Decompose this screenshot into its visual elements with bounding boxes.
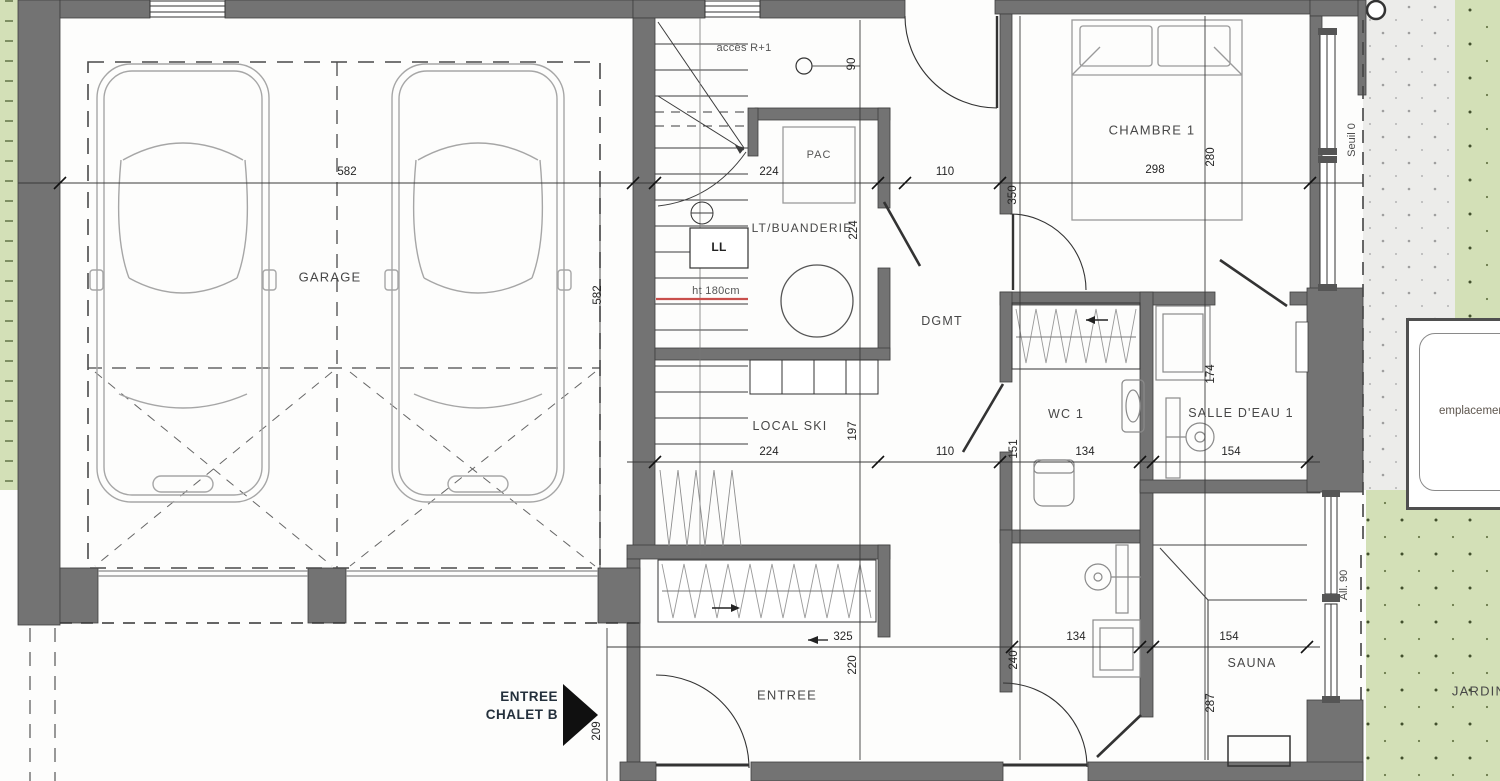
dim-label: 209 [591,721,603,740]
garage-doors [98,571,598,576]
height-note-label: ht 180cm [692,285,740,297]
car-icon [90,64,276,502]
dim-label: 154 [1221,446,1240,458]
direction-arrow-left-icon [1086,316,1108,324]
acces-etage-label: accès R+1 [717,42,772,54]
dim-label: 110 [936,446,954,458]
dim-label: 151 [1008,439,1020,458]
room-label-garage: GARAGE [299,270,362,285]
room-label-chambre1: CHAMBRE 1 [1109,123,1196,138]
dim-label: 134 [1066,631,1085,643]
dim-label: 134 [1075,446,1094,458]
dim-label: 154 [1219,631,1238,643]
dim-label: 224 [759,166,778,178]
dim-label: 220 [847,655,859,674]
dim-label: 298 [1145,164,1164,176]
garage-parking [30,62,640,781]
shower-head-icon [1186,423,1214,451]
ceiling-fixture-icon [796,58,812,74]
entree-chalet-label: ENTREE CHALET B [433,688,558,723]
room-label-dgmt: DGMT [921,314,963,328]
dim-label: 280 [1205,147,1217,166]
shower-head-icon [1085,564,1111,590]
vanity [1156,306,1210,380]
dim-label: 197 [847,421,859,440]
emplacement-label: emplacement possible o [1419,333,1500,491]
dim-label: 224 [759,446,778,458]
dim-label: 582 [592,285,604,304]
pac-label: PAC [807,149,832,161]
room-label-entree: ENTREE [757,688,817,703]
dim-label: 240 [1008,650,1020,669]
dim-label: 325 [833,631,852,643]
bed [1072,20,1242,220]
room-label-buanderie: LT/BUANDERIE [752,221,853,235]
sauna-stove [1228,736,1290,766]
room-label-wc1: WC 1 [1048,407,1084,421]
toilet [1034,460,1074,506]
room-label-jardin: JARDIN [1452,684,1500,699]
shower-rail [1166,398,1180,478]
car-icon [385,64,571,502]
seuil-label: Seuil 0 [1346,123,1358,157]
dim-label: 582 [337,166,356,178]
emplacement-box: emplacement possible o [1406,318,1500,510]
dim-label: 174 [1205,364,1217,383]
heat-pump [783,127,855,203]
dim-label: 350 [1007,185,1019,204]
dim-label: 224 [848,220,860,239]
dim-label: 90 [846,58,858,71]
washer-circle [781,265,853,337]
lave-linge-label: LL [711,240,726,254]
room-label-sauna: SAUNA [1227,656,1276,670]
room-label-local-ski: LOCAL SKI [753,419,828,433]
dimension-arrow-icon [808,636,828,644]
site-marker-icon [1367,1,1385,19]
dim-label: 110 [936,166,954,178]
room-label-salle-eau1: SALLE D'EAU 1 [1188,406,1294,420]
floor-plan: GARAGE CHAMBRE 1 LT/BUANDERIE LOCAL SKI … [0,0,1500,781]
allege-label: All. 90 [1338,570,1350,601]
dim-label: 287 [1205,693,1217,712]
